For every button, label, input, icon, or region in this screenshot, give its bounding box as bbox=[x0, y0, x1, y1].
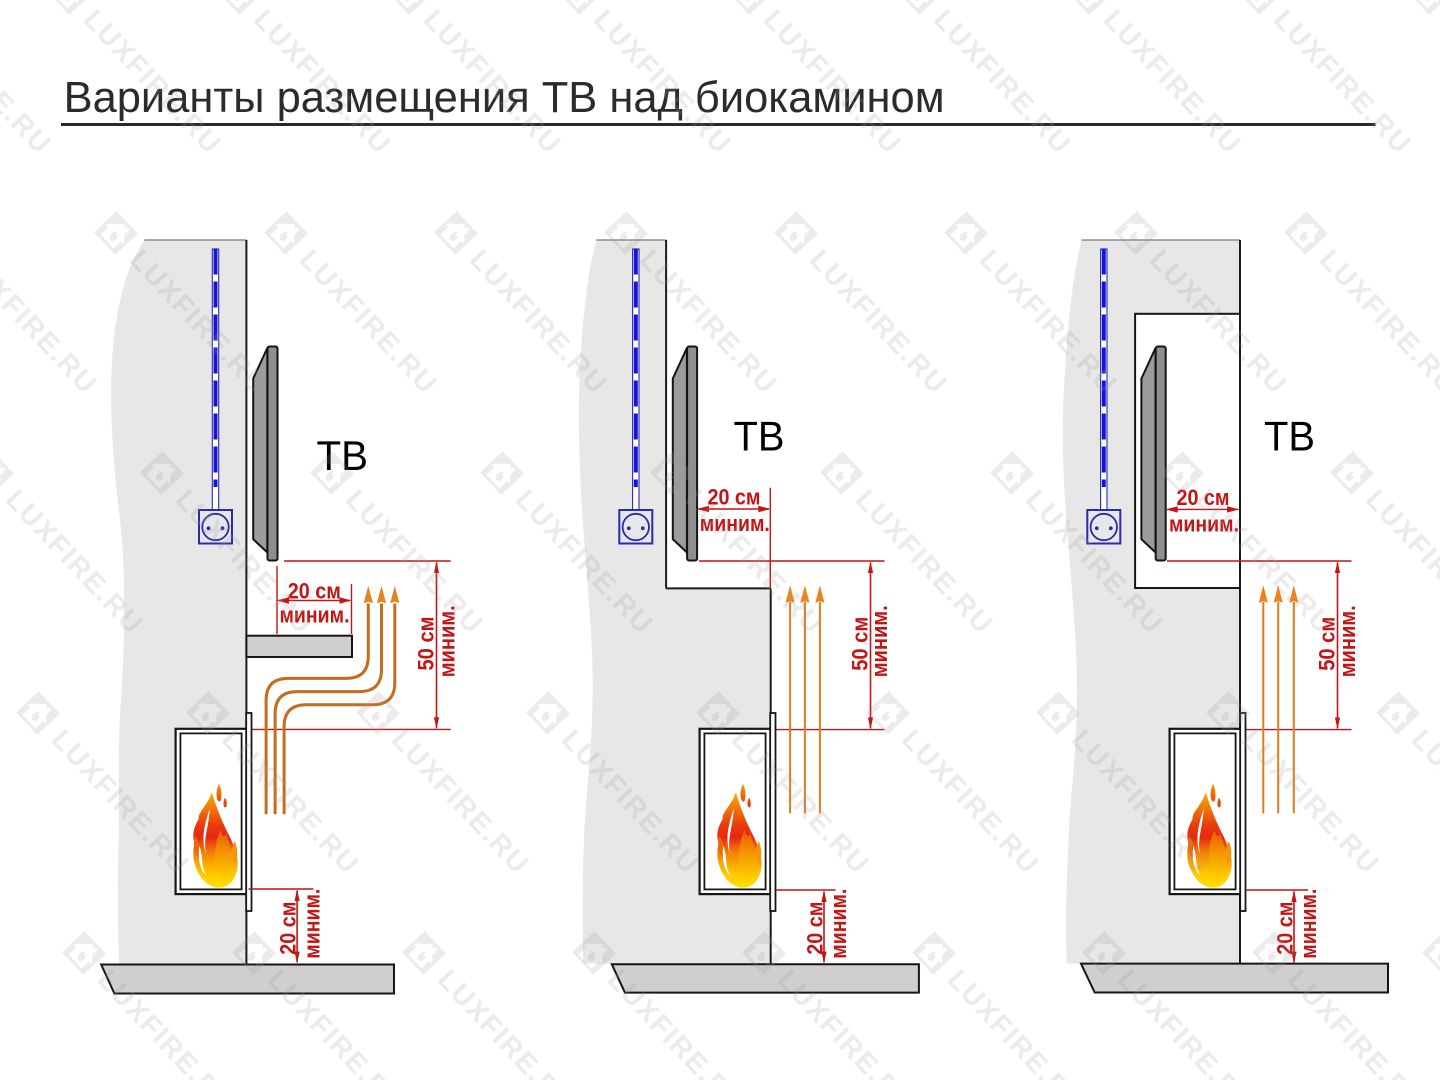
svg-text:миним.: миним. bbox=[299, 889, 324, 959]
svg-text:ТВ: ТВ bbox=[1264, 412, 1315, 459]
svg-text:миним.: миним. bbox=[867, 605, 892, 677]
svg-text:ТВ: ТВ bbox=[734, 412, 785, 459]
svg-text:20 см: 20 см bbox=[803, 902, 828, 955]
svg-text:20 см: 20 см bbox=[276, 902, 301, 955]
svg-text:миним.: миним. bbox=[826, 889, 851, 959]
svg-text:миним.: миним. bbox=[1335, 605, 1360, 677]
svg-text:миним.: миним. bbox=[1296, 889, 1321, 959]
svg-text:ТВ: ТВ bbox=[317, 432, 369, 479]
